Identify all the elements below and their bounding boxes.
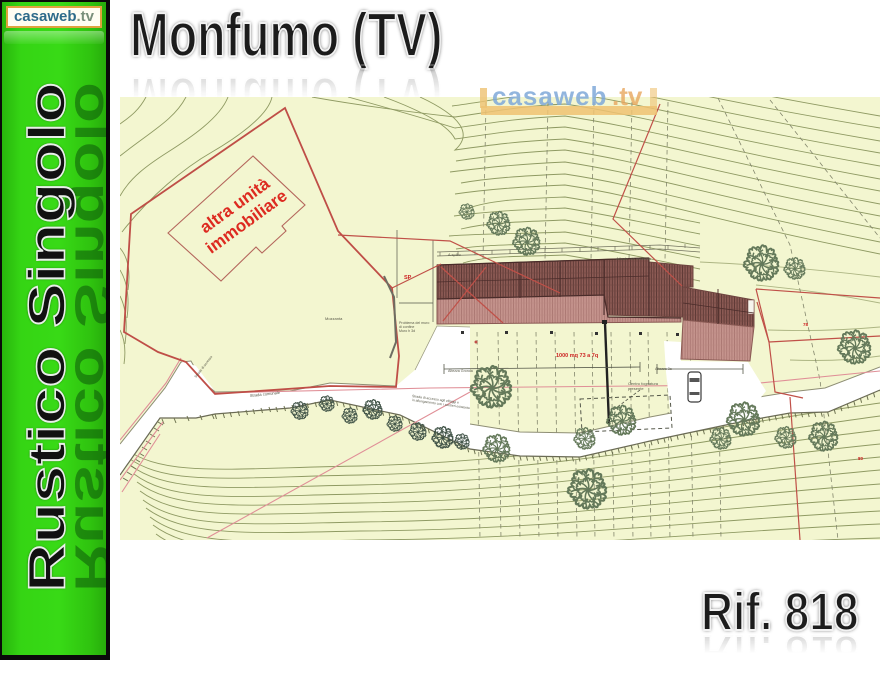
svg-text:.tv: .tv (612, 84, 643, 111)
svg-text:Mozzanta: Mozzanta (325, 316, 343, 321)
svg-text:presente: presente (628, 386, 644, 391)
svg-text:Muro h 3d: Muro h 3d (399, 329, 415, 333)
svg-text:Altezza 3a: Altezza 3a (655, 367, 672, 371)
svg-text:1000 mq 73 a 7q: 1000 mq 73 a 7q (556, 353, 598, 359)
svg-text:SP: SP (404, 275, 412, 281)
svg-text:A spillo: A spillo (448, 252, 461, 257)
svg-text:78: 78 (803, 322, 809, 327)
svg-text:Attuale via asfaltata: Attuale via asfaltata (616, 256, 652, 261)
svg-text:80: 80 (858, 456, 864, 461)
svg-text:Altezza Gronda: Altezza Gronda (448, 369, 473, 373)
svg-text:casaweb: casaweb (492, 84, 607, 111)
